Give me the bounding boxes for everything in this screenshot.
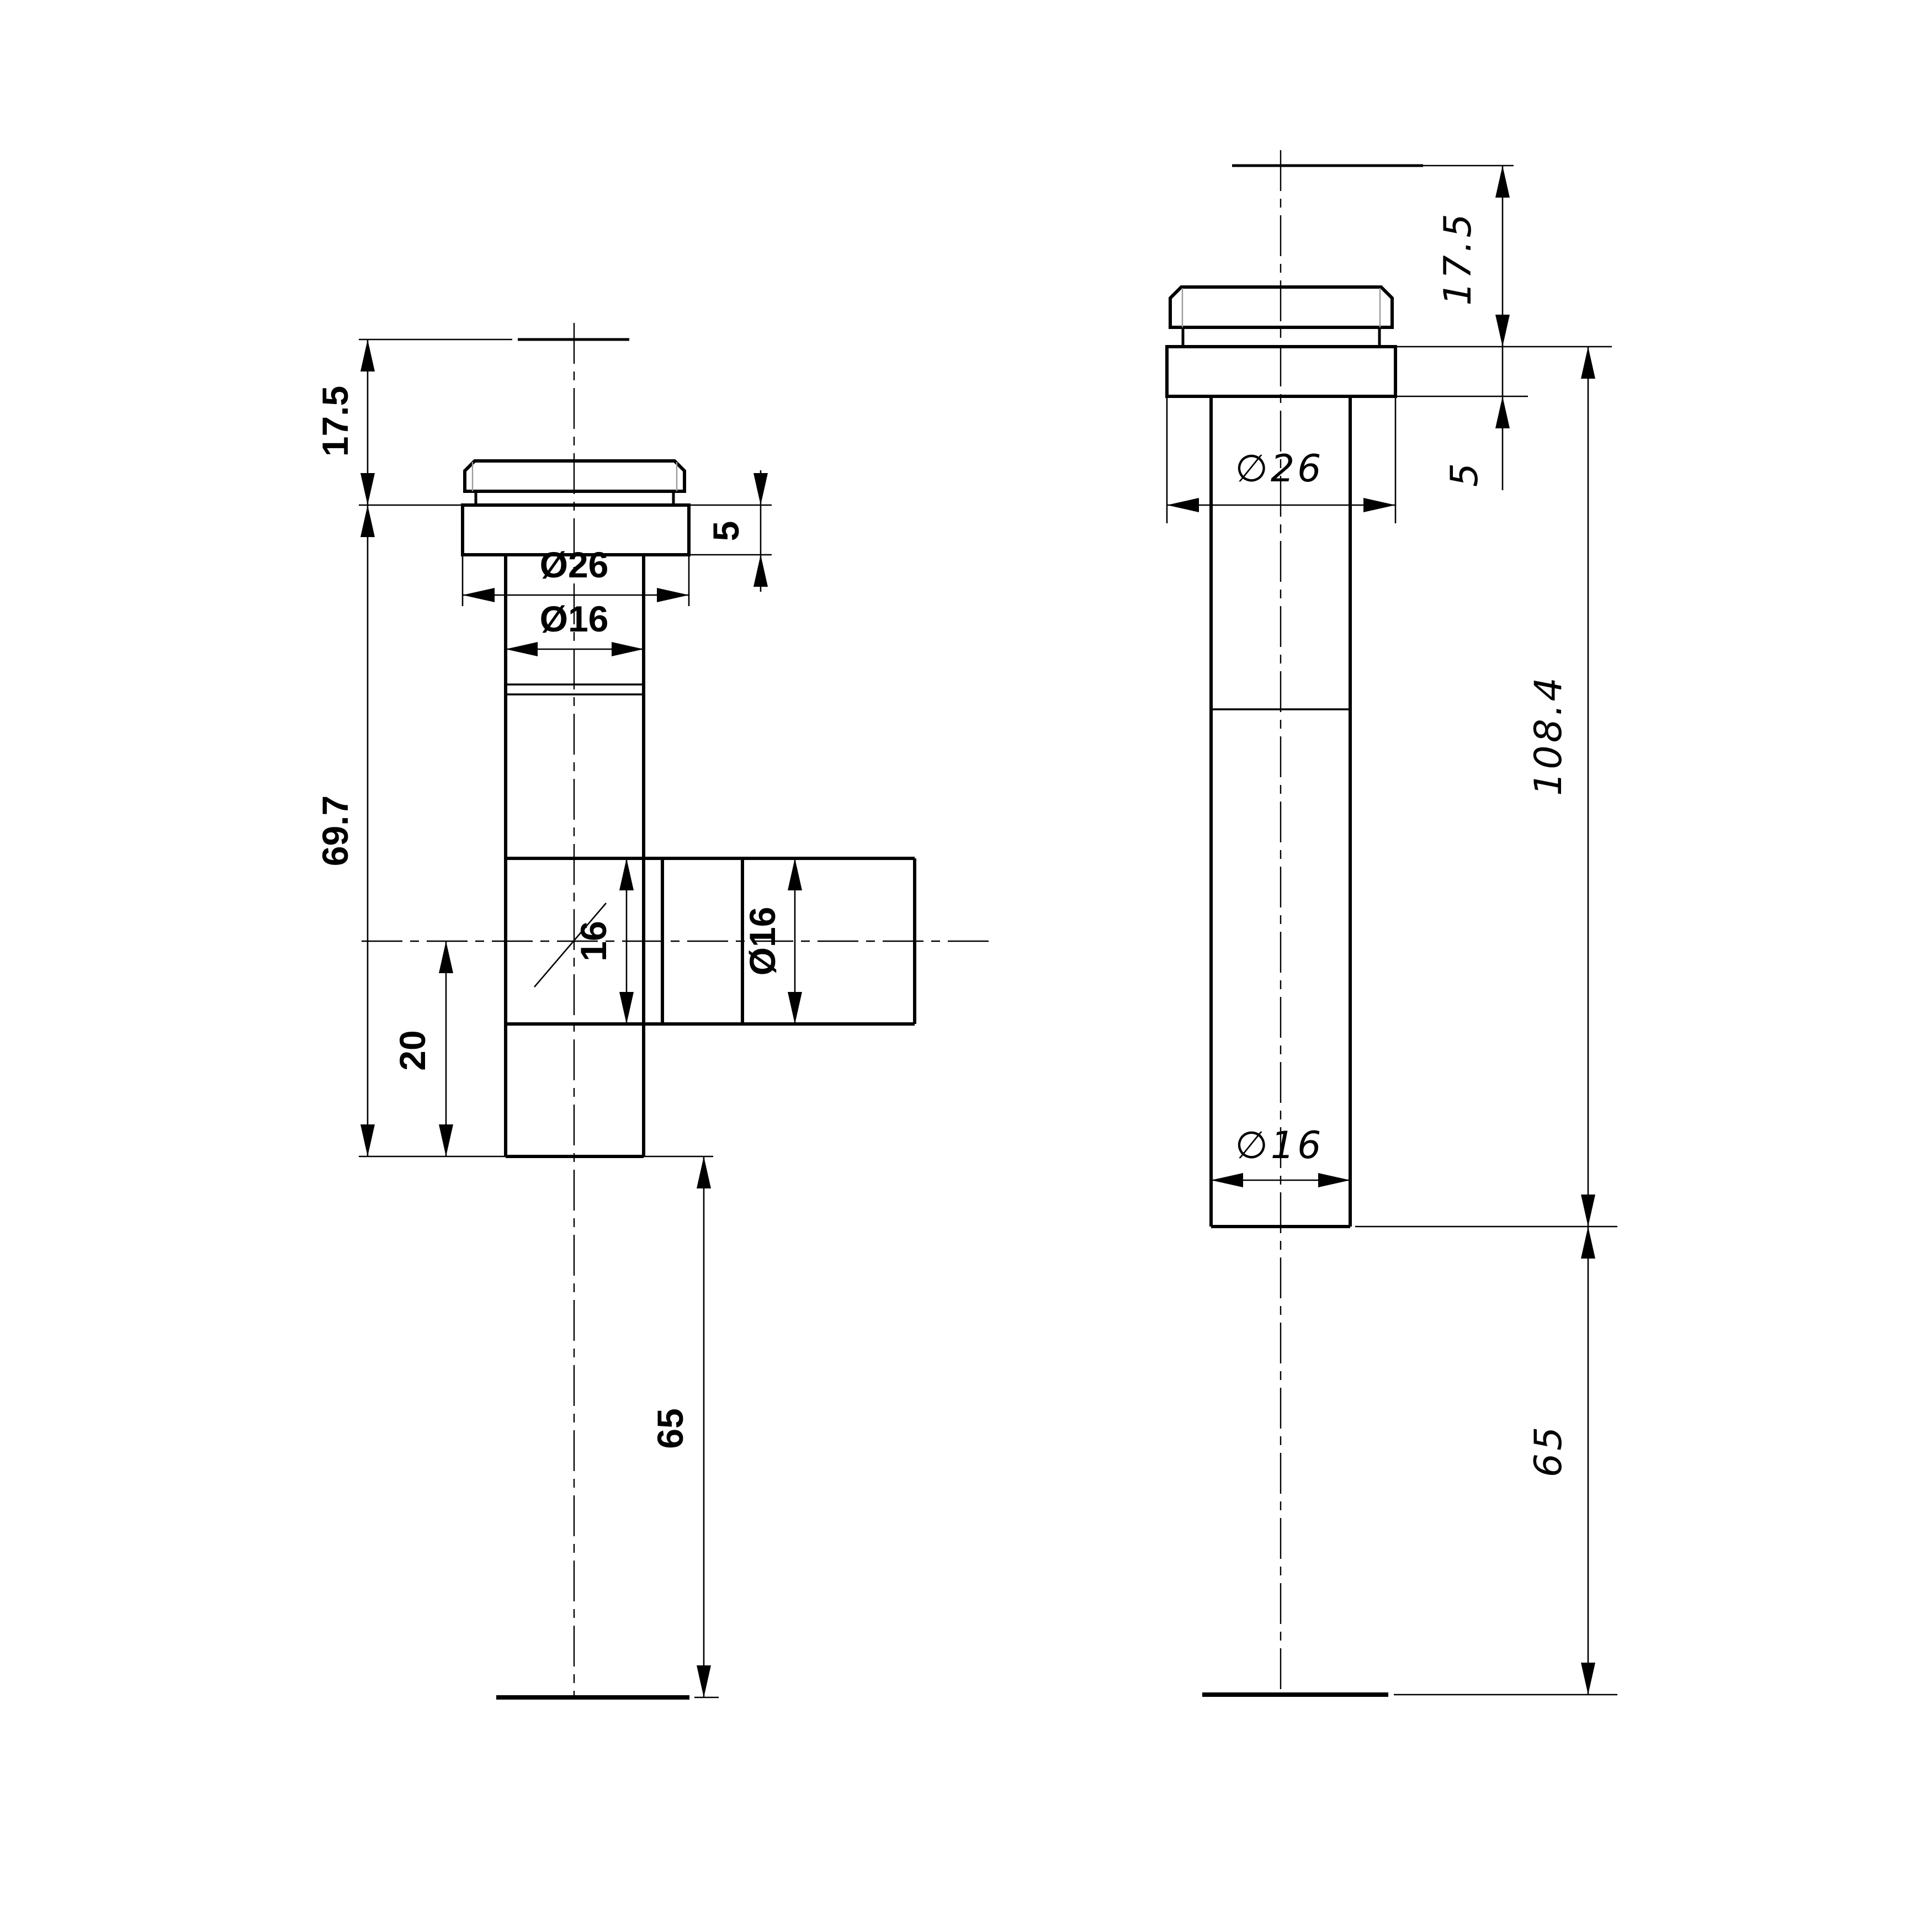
front-dim-65: 65 xyxy=(650,1156,711,1697)
dim-label-d16-branch: Ø16 xyxy=(742,907,783,976)
front-dim-5: 5 xyxy=(705,470,768,592)
side-view: 17.5 5 ∅26 108.4 ∅16 xyxy=(1167,150,1617,1695)
side-dim-5: 5 xyxy=(1443,347,1510,490)
dim-label-16: 16 xyxy=(573,921,614,961)
dim-label-d16: ∅16 xyxy=(1235,1124,1324,1167)
dim-label-5: 5 xyxy=(705,521,746,542)
dim-label-17-5: 17.5 xyxy=(1436,211,1480,305)
dim-label-d16-shaft: Ø16 xyxy=(540,598,609,639)
front-dim-17-5: 17.5 xyxy=(315,339,375,505)
side-dim-108-4: 108.4 xyxy=(1527,347,1595,1227)
dim-label-17-5: 17.5 xyxy=(315,386,355,457)
dim-label-20: 20 xyxy=(392,1030,433,1070)
dim-label-108-4: 108.4 xyxy=(1527,675,1570,796)
dim-label-5: 5 xyxy=(1443,460,1487,487)
dim-label-65: 65 xyxy=(1527,1424,1570,1478)
dim-label-65: 65 xyxy=(650,1408,691,1448)
dim-label-69-7: 69.7 xyxy=(315,795,355,866)
drawing-canvas: 17.5 69.7 5 Ø26 Ø16 xyxy=(0,0,1932,1932)
front-dim-20: 20 xyxy=(392,941,453,1156)
side-dim-17-5: 17.5 xyxy=(1436,166,1510,347)
dim-label-d26: Ø26 xyxy=(540,544,609,585)
dim-label-d26: ∅26 xyxy=(1235,447,1324,491)
front-dim-69-7: 69.7 xyxy=(315,505,375,1156)
front-view: 17.5 69.7 5 Ø26 Ø16 xyxy=(315,323,991,1697)
front-dim-d26: Ø26 xyxy=(463,544,689,602)
cad-drawing: 17.5 69.7 5 Ø26 Ø16 xyxy=(0,0,1932,1932)
front-dim-d16-shaft: Ø16 xyxy=(506,598,644,656)
side-dim-65: 65 xyxy=(1527,1227,1595,1695)
